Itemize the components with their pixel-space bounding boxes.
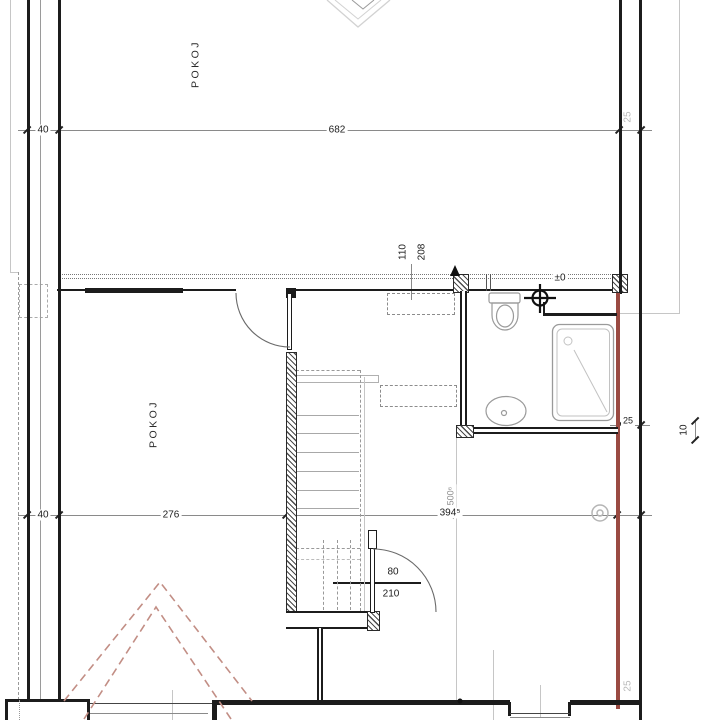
dim-label-394: 394⁵	[438, 508, 463, 519]
dim-label-40-mid: 40	[35, 510, 50, 521]
dim-label-25-top-right: 25	[623, 109, 634, 124]
dim-label-25-bath: 25	[621, 416, 635, 427]
ridge-marker-outer	[327, 0, 390, 27]
level-label: ±0	[552, 273, 567, 284]
door-swing-arc-lower	[373, 549, 436, 612]
room-label-upper: POKOJ	[191, 38, 202, 90]
shower-fixture	[553, 325, 614, 421]
door-size-height: 210	[381, 589, 402, 600]
toilet-fixture	[489, 293, 520, 330]
dim-label-682: 682	[327, 125, 348, 136]
ridge-marker-small	[352, 0, 374, 9]
dim-label-25-bottom-right: 25	[623, 678, 634, 693]
roof-slope-dashed-inner	[84, 607, 231, 719]
washbasin-fixture	[486, 397, 526, 426]
dimension-node-dot	[458, 699, 463, 704]
section-arrow-icon	[450, 265, 460, 276]
plan-symbols-layer	[0, 0, 707, 720]
dim-label-276: 276	[161, 510, 182, 521]
dim-label-208: 208	[417, 242, 428, 263]
dim-label-10-step: 10	[679, 422, 690, 437]
dim-label-40-top: 40	[35, 125, 50, 136]
room-label-lower: POKOJ	[149, 398, 160, 450]
ridge-marker-inner	[335, 0, 381, 19]
door-swing-arc-upper	[236, 293, 290, 347]
drain-icon	[592, 505, 608, 521]
floor-plan-canvas: POKOJ POKOJ 40 682 25 40 276 394⁵ 500⁶ 1…	[0, 0, 707, 720]
dim-label-110: 110	[398, 242, 409, 262]
dim-label-500-vertical: 500⁶	[446, 485, 457, 508]
door-size-width: 80	[385, 567, 400, 578]
level-point-icon	[524, 284, 556, 313]
roof-slope-dashed-outer	[64, 582, 252, 701]
